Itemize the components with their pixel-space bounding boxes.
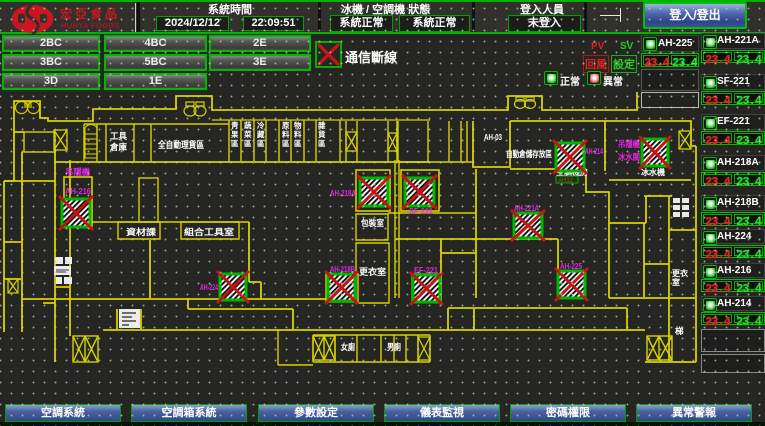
svg-text:包裝室: 包裝室 <box>361 218 384 228</box>
svg-text:原料區: 原料區 <box>282 121 290 148</box>
svg-text:冰水機: 冰水機 <box>641 167 665 177</box>
svg-text:梯: 梯 <box>675 326 684 336</box>
svg-text:組合工具室: 組合工具室 <box>184 227 235 237</box>
svg-text:雜貨區: 雜貨區 <box>318 120 326 148</box>
svg-text:物料區: 物料區 <box>294 120 302 148</box>
svg-text:AH-03: AH-03 <box>484 132 502 142</box>
svg-text:吊隱機冰水閥: 吊隱機冰水閥 <box>618 139 640 162</box>
svg-text:吊隱機AH-216: 吊隱機AH-216 <box>65 167 91 196</box>
svg-text:全自動理貨區: 全自動理貨區 <box>157 139 204 150</box>
svg-text:AH-214: AH-214 <box>585 146 603 156</box>
svg-text:男廁: 男廁 <box>387 342 401 352</box>
svg-text:AH-218A: AH-218A <box>330 188 356 198</box>
svg-text:工具倉庫: 工具倉庫 <box>109 131 128 152</box>
svg-text:女廁: 女廁 <box>341 342 355 352</box>
svg-text:蔬菜區: 蔬菜區 <box>243 120 252 148</box>
svg-text:資材課: 資材課 <box>125 227 157 237</box>
svg-text:靑果區: 靑果區 <box>231 120 239 148</box>
svg-text:AH12: AH12 <box>558 178 574 184</box>
svg-text:自動倉儲存放區: 自動倉儲存放區 <box>506 149 552 159</box>
svg-text:AH-224: AH-224 <box>200 282 218 292</box>
svg-text:更衣室: 更衣室 <box>359 266 386 277</box>
svg-text:更衣室: 更衣室 <box>672 268 688 287</box>
svg-text:冷藏區: 冷藏區 <box>257 120 265 148</box>
